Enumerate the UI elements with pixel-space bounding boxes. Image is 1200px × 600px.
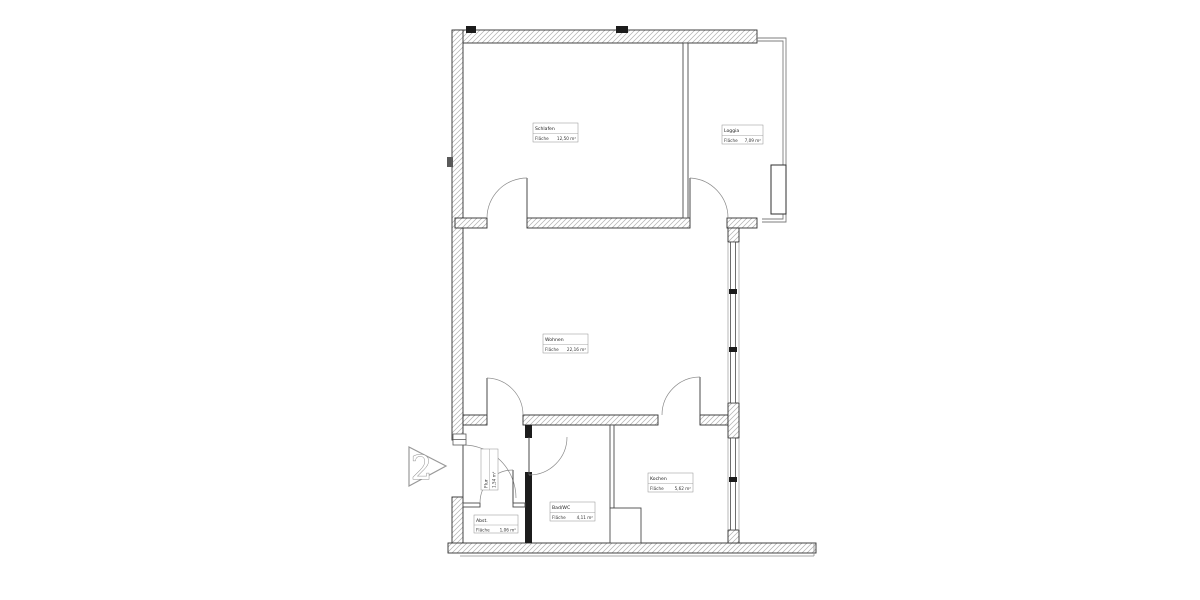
- room-area-value: 7,09 m²: [745, 138, 762, 143]
- wall-exterior-bottom: [448, 543, 816, 553]
- wall-exterior-left-upper: [452, 30, 463, 440]
- room-area-value: 4,11 m²: [577, 515, 594, 520]
- room-area-label: Fläche: [476, 528, 490, 533]
- top-wall-joint-tick-left: [466, 26, 476, 33]
- wall-poche-hall-bath: [525, 472, 532, 543]
- room-label-kochen: Kochen Fläche 5,62 m²: [648, 473, 693, 492]
- room-area-label: Fläche: [650, 486, 664, 491]
- wall-pier-right-middle: [728, 403, 739, 438]
- room-label-loggia: Loggia Fläche 7,09 m²: [722, 125, 763, 144]
- door-bedroom: [487, 178, 527, 218]
- loggia-pier: [771, 165, 786, 214]
- room-area-value: 12,50 m²: [557, 136, 576, 141]
- window-living-room: [728, 242, 739, 403]
- room-label-badwc: Bad/WC Fläche 4,11 m²: [550, 502, 595, 521]
- unit-number: 2: [411, 448, 432, 487]
- room-label-flur: Flur 1,54 m²: [481, 449, 498, 490]
- window-living-mullion-2: [729, 347, 737, 352]
- room-name: Bad/WC: [552, 505, 570, 511]
- wall-interior-bottom-right-stub: [700, 415, 728, 425]
- room-name: Schlafen: [535, 126, 555, 132]
- wall-pier-right-bottom: [728, 530, 739, 543]
- room-area-value: 1,54 m²: [492, 471, 497, 488]
- wall-exterior-top: [455, 30, 757, 43]
- duct-shaft: [610, 508, 641, 543]
- door-loggia: [690, 178, 728, 218]
- door-living-to-hall: [487, 378, 523, 415]
- wall-poche-hall-stub: [525, 425, 532, 438]
- room-area-label: Fläche: [724, 138, 738, 143]
- room-label-wohnen: Wohnen Fläche 22,16 m²: [543, 334, 588, 353]
- wall-interior-top-right-stub: [727, 218, 757, 228]
- room-name: Loggia: [724, 128, 739, 134]
- room-label-schlafen: Schlafen Fläche 12,50 m²: [533, 123, 578, 142]
- room-area-label: Fläche: [535, 136, 549, 141]
- left-wall-fixture: [447, 157, 453, 167]
- window-living-mullion-1: [729, 289, 737, 294]
- wall-interior-bottom-slab: [523, 415, 658, 425]
- room-area-value: 1,06 m²: [500, 528, 517, 533]
- entrance-marker: 2: [409, 447, 446, 487]
- door-living-to-kitchen: [662, 377, 700, 415]
- wall-exterior-left-lower: [452, 497, 463, 545]
- wall-interior-top-slab: [527, 218, 690, 228]
- window-kitchen-glazing: [731, 438, 736, 530]
- entrance-threshold-symbol: [453, 434, 466, 445]
- room-name: Kochen: [650, 476, 667, 482]
- wall-partition-bedroom-loggia: [683, 43, 688, 218]
- room-name: Wohnen: [545, 337, 564, 343]
- floor-plan-canvas: 2 Schlafen Fläche 12,50 m² Loggia Fläche…: [0, 0, 1200, 600]
- window-kitchen: [728, 438, 739, 530]
- room-area-value: 5,62 m²: [675, 486, 692, 491]
- window-living-glazing: [731, 242, 736, 403]
- room-area-label: Fläche: [552, 515, 566, 520]
- room-name: Flur: [484, 479, 490, 488]
- floor-plan-page: 2 Schlafen Fläche 12,50 m² Loggia Fläche…: [0, 0, 1200, 600]
- wall-partition-bath-kitchen: [610, 425, 614, 508]
- room-name: Abst.: [476, 518, 488, 524]
- room-label-abstell: Abst. Fläche 1,06 m²: [474, 515, 518, 533]
- wall-pier-right-top: [728, 228, 739, 242]
- room-area-label: Fläche: [545, 347, 559, 352]
- wall-interior-top-left-stub: [455, 218, 487, 228]
- window-kitchen-mullion: [729, 477, 737, 482]
- wall-interior-bottom-left-stub: [463, 415, 487, 425]
- door-bath: [529, 437, 567, 475]
- room-area-value: 22,16 m²: [567, 347, 586, 352]
- wall-storage-top-left: [463, 503, 480, 507]
- wall-storage-top-right-stub: [513, 503, 525, 507]
- top-wall-joint-tick-right: [616, 26, 628, 33]
